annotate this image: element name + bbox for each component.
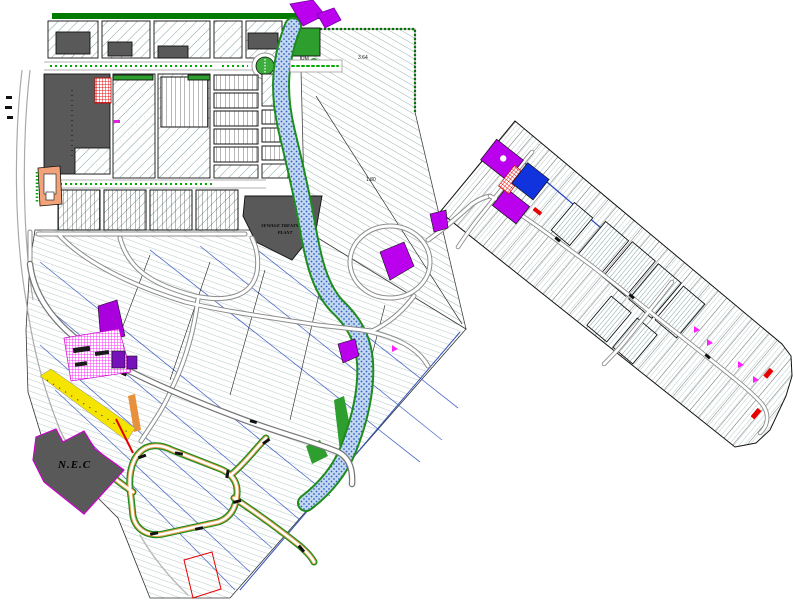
- peach-building: [37, 166, 62, 206]
- grid-row2-blocks: [44, 74, 288, 178]
- parcel-area-label-top: 3.64: [358, 55, 368, 61]
- parcel-area-label-mid: UM: [301, 56, 309, 62]
- magenta-mark-grid: [113, 120, 120, 123]
- left-edge-marks: [5, 96, 13, 119]
- parcel-area-label-bottom: 1.80: [366, 177, 376, 183]
- site-plan-canvas: SEWAGE TREATMENT PLANT: [0, 0, 793, 601]
- site-plan-svg: SEWAGE TREATMENT PLANT: [0, 0, 793, 601]
- grid-row3-blocks: [58, 190, 238, 230]
- sewage-plant-label-line2: PLANT: [278, 230, 293, 235]
- dark-purple-block-2: [127, 356, 137, 369]
- grid-road-lower: [44, 180, 266, 188]
- dark-purple-block-1: [112, 351, 125, 368]
- nec-label: N.E.C: [57, 459, 91, 471]
